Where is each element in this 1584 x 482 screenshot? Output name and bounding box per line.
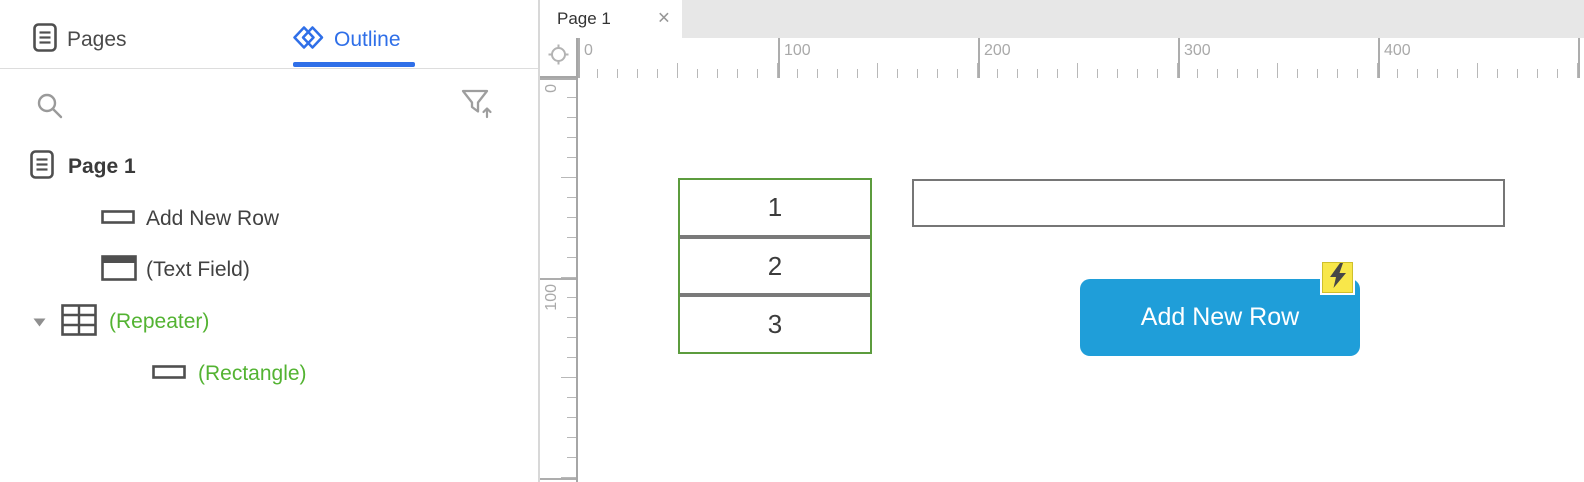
tree-item-label: (Text Field): [146, 258, 250, 282]
tab-pages-label: Pages: [67, 28, 127, 52]
button-widget-icon: [101, 210, 135, 229]
ruler-label: 100: [543, 284, 561, 311]
ruler-origin-corner: [540, 38, 578, 78]
text-field-widget[interactable]: [912, 179, 1505, 227]
tab-outline-label: Outline: [334, 28, 401, 52]
horizontal-ruler[interactable]: 0 100 200 300 400: [578, 38, 1584, 78]
tree-item-add-new-row[interactable]: Add New Row: [101, 202, 279, 236]
tree-item-label: Page 1: [68, 155, 136, 179]
pages-icon: [33, 23, 57, 57]
ruler-label: 200: [984, 42, 1011, 60]
rectangle-icon: [152, 365, 186, 384]
tree-item-rectangle[interactable]: (Rectangle): [152, 357, 307, 391]
tree-item-label: Add New Row: [146, 207, 279, 231]
text-field-icon: [101, 255, 137, 286]
repeater-icon: [61, 304, 97, 341]
axure-outline-and-canvas: Pages Outline: [0, 0, 1584, 482]
tab-outline[interactable]: Outline: [293, 20, 401, 60]
left-panel: Pages Outline: [0, 0, 538, 482]
repeater-row-3[interactable]: 3: [680, 297, 870, 352]
canvas-tabstrip: Page 1 ×: [540, 0, 1584, 38]
outline-icon: [293, 25, 324, 55]
page-icon: [30, 150, 54, 184]
ruler-label: 0: [584, 42, 593, 60]
ruler-label: 0: [543, 84, 561, 93]
panel-divider: [0, 68, 538, 69]
tree-item-repeater[interactable]: (Repeater): [33, 305, 209, 339]
vertical-ruler[interactable]: 0 100: [540, 78, 578, 482]
add-new-row-button-label: Add New Row: [1141, 303, 1299, 332]
interaction-badge: [1322, 262, 1353, 293]
ruler-label: 100: [784, 42, 811, 60]
canvas-tab-page-1[interactable]: Page 1 ×: [540, 0, 682, 38]
repeater-row-2[interactable]: 2: [680, 239, 870, 294]
close-icon[interactable]: ×: [658, 8, 670, 29]
repeater-widget[interactable]: 1 2 3: [678, 178, 872, 354]
tree-item-page-1[interactable]: Page 1: [30, 150, 136, 184]
ruler-label: 300: [1184, 42, 1211, 60]
tree-item-text-field[interactable]: (Text Field): [101, 253, 250, 287]
lightning-icon: [1325, 262, 1350, 294]
tree-item-label: (Repeater): [109, 310, 209, 334]
outline-search-row: [0, 84, 538, 128]
filter-icon[interactable]: [460, 88, 494, 125]
add-new-row-button[interactable]: Add New Row: [1080, 279, 1360, 356]
repeater-row-1[interactable]: 1: [680, 180, 870, 235]
canvas-tab-title: Page 1: [557, 9, 611, 29]
collapse-caret-icon[interactable]: [33, 318, 46, 327]
search-icon[interactable]: [36, 92, 64, 125]
tree-item-label: (Rectangle): [198, 362, 307, 386]
ruler-label: 400: [1384, 42, 1411, 60]
crosshair-icon: [548, 44, 569, 70]
active-tab-indicator: [293, 62, 415, 67]
tab-pages[interactable]: Pages: [33, 20, 127, 60]
